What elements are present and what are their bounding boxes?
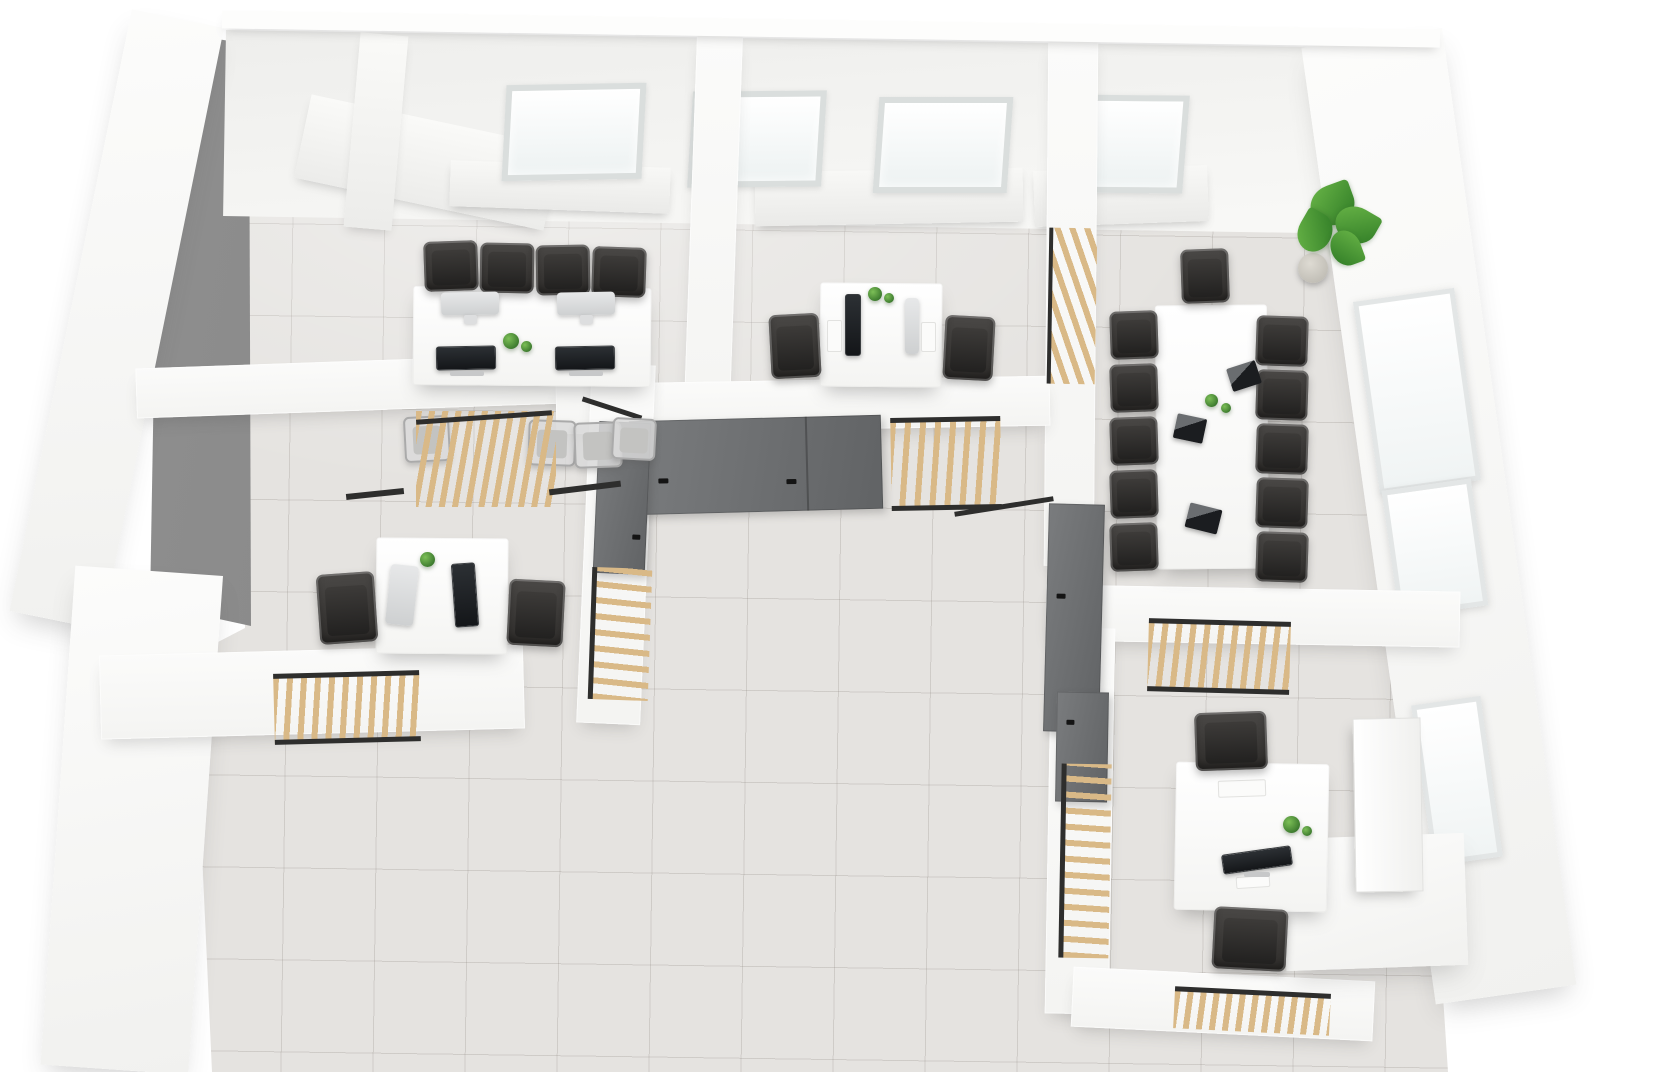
monitor-b-1 [845, 294, 861, 356]
chair-d-2 [506, 579, 565, 648]
monitor-a-stand-2 [580, 315, 593, 324]
door-seam [805, 417, 809, 511]
cabinet-e [1352, 717, 1423, 892]
chair-d-1 [316, 571, 379, 645]
chair-e-1 [1194, 711, 1268, 771]
monitor-a-stand-1 [464, 315, 477, 324]
slat-panel-corridor-left [590, 567, 653, 701]
slat-frame-top [890, 416, 1000, 423]
plant-conf-2 [1221, 403, 1231, 413]
chair-conf-head [1180, 248, 1230, 304]
plant-pot [1298, 253, 1328, 283]
plant-b-2 [884, 293, 894, 303]
chair-a-3 [536, 245, 591, 296]
chair-b-2 [942, 315, 995, 382]
slat-panel-e-north [1147, 620, 1291, 694]
slat-panel-corridor [890, 418, 1002, 510]
chair-e-2 [1211, 906, 1288, 972]
monitor-a-back-2 [557, 291, 615, 315]
chair-conf-l5 [1109, 522, 1159, 572]
skylight-3 [873, 97, 1014, 193]
chair-a-2 [480, 243, 535, 294]
sliding-door-corridor [629, 415, 883, 516]
chair-conf-r4 [1255, 477, 1309, 529]
chair-conf-r2 [1255, 369, 1309, 421]
skylight-1 [501, 83, 646, 182]
door-handle-1 [658, 478, 668, 483]
monitor-a-screen-2 [555, 345, 615, 370]
keyboard-b-2 [921, 322, 936, 352]
chair-conf-l3 [1109, 416, 1159, 466]
monitor-a-back-1 [441, 291, 499, 315]
monitor-a-base-1 [450, 371, 484, 376]
monitor-a-base-2 [569, 371, 603, 376]
door-handle-3 [632, 534, 640, 539]
chair-conf-r3 [1255, 423, 1309, 475]
slat-frame-top [416, 410, 552, 424]
chair-conf-r1 [1255, 315, 1309, 367]
plant-a-2 [521, 341, 532, 352]
slat-panel-d-south [273, 672, 421, 744]
slat-panel-conference-west [1049, 228, 1098, 385]
slat-panel-a-d [416, 411, 556, 507]
outer-wall-bottom-left [40, 566, 223, 1072]
door-handle-2 [786, 479, 796, 484]
chair-conf-l2 [1109, 363, 1159, 413]
monitor-b-2 [905, 298, 919, 354]
monitor-e-base [1244, 872, 1270, 877]
door-handle-4 [1057, 594, 1066, 599]
chair-b-1 [768, 313, 821, 380]
chair-conf-r5 [1255, 531, 1309, 583]
monitor-a-screen-1 [436, 345, 496, 370]
slat-panel-e-south [1173, 988, 1331, 1036]
chair-a-4 [591, 246, 647, 298]
plant-b-1 [868, 287, 882, 301]
large-plant [1290, 185, 1385, 290]
plant-e-1 [1283, 816, 1300, 833]
chair-conf-l1 [1109, 310, 1159, 360]
plant-d-1 [420, 552, 435, 567]
plant-e-2 [1302, 826, 1312, 836]
floorplan-render [0, 0, 1665, 1072]
door-handle-6 [1066, 720, 1074, 725]
chair-a-1 [423, 240, 479, 292]
chair-conf-l4 [1109, 469, 1159, 519]
plant-a-1 [503, 333, 519, 349]
paper-e-1 [1218, 779, 1267, 798]
monitor-d-2 [451, 562, 479, 628]
plant-conf-1 [1205, 394, 1218, 407]
slat-panel-e-west [1060, 764, 1111, 959]
chair-a-8 [611, 417, 657, 461]
keyboard-b-1 [827, 320, 842, 352]
